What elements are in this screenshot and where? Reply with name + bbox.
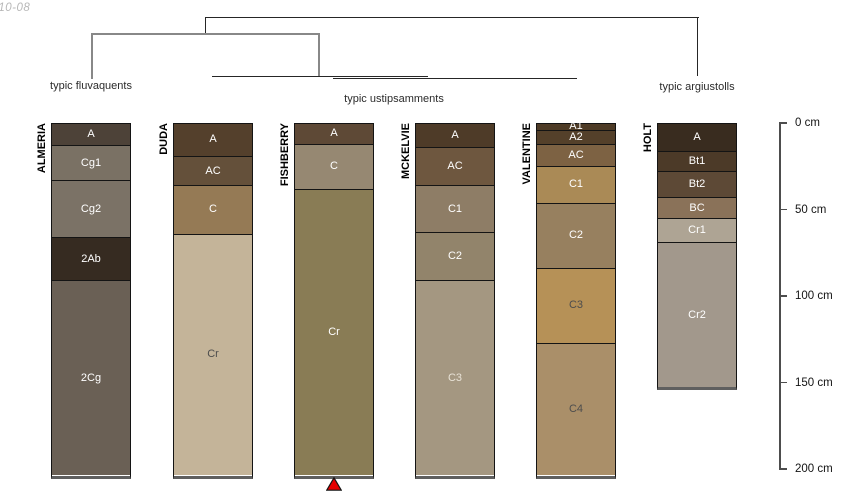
depth-axis-tick-label: 150 cm (795, 377, 833, 389)
horizon-label: Cr2 (688, 310, 706, 321)
horizon-almeria-2ab: 2Ab (52, 238, 130, 281)
profile-column-mckelvie: AACC1C2C3 (415, 123, 495, 479)
horizon-label: C1 (448, 204, 462, 215)
depth-axis-tick (779, 468, 787, 470)
horizon-mckelvie-c2: C2 (416, 233, 494, 281)
horizon-valentine-c2: C2 (537, 204, 615, 270)
horizon-valentine-c1: C1 (537, 167, 615, 203)
horizon-fishberry-cr: Cr (295, 190, 373, 475)
profile-id-label-valentine: VALENTINE (521, 123, 534, 185)
depth-axis-tick (779, 295, 787, 297)
horizon-label: A (693, 132, 700, 143)
horizon-label: Bt1 (689, 156, 706, 167)
horizon-label: Bt2 (689, 179, 706, 190)
profile-id-label-duda: DUDA (158, 123, 171, 155)
horizon-valentine-ac: AC (537, 145, 615, 167)
horizon-label: C2 (448, 251, 462, 262)
horizon-duda-c: C (174, 186, 252, 234)
profile-id-label-fishberry: FISHBERRY (279, 123, 292, 186)
horizon-label: Cg2 (81, 204, 101, 215)
profile-id-label-holt: HOLT (642, 123, 655, 152)
horizon-label: AC (205, 166, 220, 177)
horizon-label: 2Ab (81, 254, 101, 265)
red-triangle-marker-icon (326, 477, 342, 496)
horizon-label: BC (689, 203, 704, 214)
profile-column-duda: AACCCr (173, 123, 253, 479)
dendrogram-group-label: typic fluvaquents (50, 80, 132, 92)
depth-axis-tick-label: 100 cm (795, 290, 833, 302)
depth-axis-tick-label: 50 cm (795, 204, 826, 216)
horizon-label: C2 (569, 230, 583, 241)
horizon-holt-cr1: Cr1 (658, 219, 736, 243)
horizon-holt-a: A (658, 124, 736, 152)
horizon-label: C3 (448, 373, 462, 384)
horizon-fishberry-a: A (295, 124, 373, 145)
horizon-valentine-c3: C3 (537, 269, 615, 343)
dendrogram-segment (205, 17, 206, 34)
depth-axis-tick-label: 0 cm (795, 117, 820, 129)
horizon-label: A (330, 128, 337, 139)
horizon-holt-bt1: Bt1 (658, 152, 736, 173)
horizon-label: Cg1 (81, 158, 101, 169)
horizon-almeria-a: A (52, 124, 130, 146)
horizon-label: A (209, 134, 216, 145)
horizon-label: Cr (328, 327, 340, 338)
soil-profile-figure: -10-08 typic fluvaquentstypic ustipsamme… (0, 0, 850, 500)
horizon-valentine-a2: A2 (537, 131, 615, 145)
profile-column-holt: ABt1Bt2BCCr1Cr2 (657, 123, 737, 390)
horizon-holt-bc: BC (658, 198, 736, 219)
horizon-almeria-2cg: 2Cg (52, 281, 130, 475)
horizon-fishberry-c: C (295, 145, 373, 190)
horizon-label: Cr (207, 349, 219, 360)
depth-axis-tick-label: 200 cm (795, 463, 833, 475)
horizon-almeria-cg1: Cg1 (52, 146, 130, 181)
horizon-label: A2 (569, 132, 582, 143)
depth-axis-tick (779, 122, 787, 124)
dendrogram-segment (318, 33, 320, 77)
horizon-mckelvie-a: A (416, 124, 494, 148)
horizon-valentine-a1: A1 (537, 124, 615, 131)
horizon-label: C (330, 161, 338, 172)
horizon-mckelvie-c1: C1 (416, 186, 494, 233)
horizon-label: C1 (569, 179, 583, 190)
profile-column-almeria: ACg1Cg22Ab2Cg (51, 123, 131, 479)
horizon-label: 2Cg (81, 373, 101, 384)
profile-id-label-mckelvie: MCKELVIE (400, 123, 413, 179)
horizon-label: C (209, 204, 217, 215)
horizon-almeria-cg2: Cg2 (52, 181, 130, 238)
horizon-label: C3 (569, 300, 583, 311)
profile-column-fishberry: ACCr (294, 123, 374, 479)
horizon-duda-cr: Cr (174, 235, 252, 475)
horizon-holt-bt2: Bt2 (658, 172, 736, 198)
dendrogram-segment (697, 17, 698, 76)
horizon-label: A (451, 130, 458, 141)
horizon-mckelvie-ac: AC (416, 148, 494, 186)
horizon-holt-cr2: Cr2 (658, 243, 736, 387)
dendrogram-segment (205, 17, 699, 18)
horizon-label: C4 (569, 404, 583, 415)
depth-axis-tick (779, 382, 787, 384)
date-watermark: -10-08 (0, 2, 30, 14)
horizon-duda-a: A (174, 124, 252, 157)
profile-column-valentine: A1A2ACC1C2C3C4 (536, 123, 616, 479)
horizon-mckelvie-c3: C3 (416, 281, 494, 475)
dendrogram-group-label: typic argiustolls (659, 81, 734, 93)
dendrogram-segment (91, 33, 93, 79)
dendrogram-group-label: typic ustipsamments (344, 93, 444, 105)
depth-axis-tick (779, 209, 787, 211)
horizon-label: A (87, 129, 94, 140)
profile-id-label-almeria: ALMERIA (36, 123, 49, 173)
horizon-label: Cr1 (688, 225, 706, 236)
dendrogram-segment (91, 33, 320, 35)
horizon-duda-ac: AC (174, 157, 252, 186)
dendrogram-segment (333, 78, 577, 79)
horizon-valentine-c4: C4 (537, 344, 615, 475)
horizon-label: AC (568, 150, 583, 161)
horizon-label: AC (447, 161, 462, 172)
